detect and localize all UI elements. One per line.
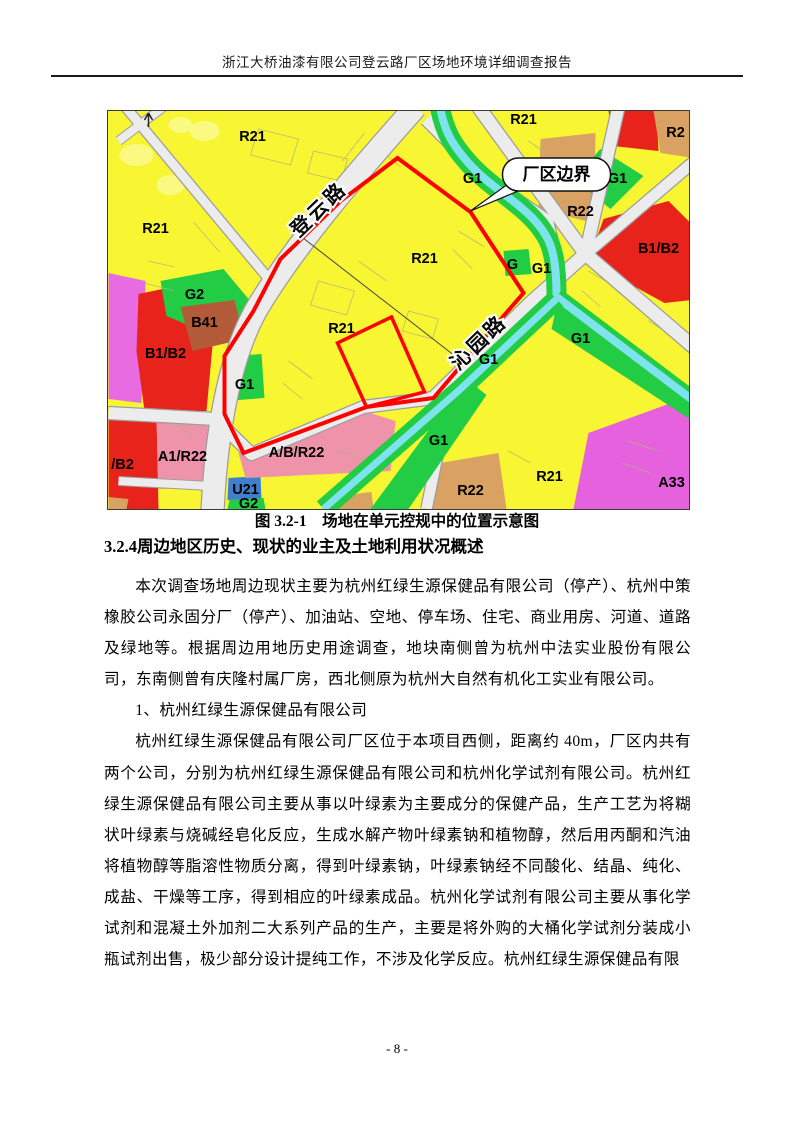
zone-label-G1: G1 <box>532 261 551 277</box>
zone-label-R21: R21 <box>536 469 563 485</box>
zone-tan-bl <box>109 497 129 509</box>
zone-label-R21: R21 <box>510 112 537 128</box>
zone-label-B1/B2: B1/B2 <box>145 346 186 362</box>
zone-label-B1/B2: B1/B2 <box>638 241 679 257</box>
zone-label-R22: R22 <box>457 483 484 499</box>
zone-label-G1: G1 <box>235 377 254 393</box>
zoning-map: R21R21R21R2R22G1B1/B2G1GG1G2B41B1/B2R21R… <box>108 111 689 509</box>
zone-label-R21: R21 <box>328 321 355 337</box>
zone-label-B41: B41 <box>191 315 218 331</box>
list-item-1: 1、杭州红绿生源保健品有限公司 <box>104 695 691 726</box>
zone-label-G1: G1 <box>429 433 448 449</box>
page-number: - 8 - <box>0 1041 794 1057</box>
zone-label-R2: R2 <box>666 125 685 141</box>
zone-label-R21: R21 <box>142 221 169 237</box>
zone-label-G2: G2 <box>185 287 204 303</box>
paragraph-2: 杭州红绿生源保健品有限公司厂区位于本项目西侧，距离约 40m，厂区内共有两个公司… <box>104 726 691 975</box>
zone-label-G: G <box>507 257 518 273</box>
zone-label-A33: A33 <box>658 475 685 491</box>
header-rule <box>51 75 743 77</box>
zone-label-G1: G1 <box>463 171 482 187</box>
zone-label-/B2: /B2 <box>111 457 134 473</box>
section-heading: 3.2.4周边地区历史、现状的业主及土地利用状况概述 <box>104 533 704 557</box>
document-page: 浙江大桥油漆有限公司登云路厂区场地环境详细调查报告 <box>0 0 794 1123</box>
zone-label-R21: R21 <box>411 251 438 267</box>
paragraph-1: 本次调查场地周边现状主要为杭州红绿生源保健品有限公司（停产）、杭州中策橡胶公司永… <box>104 571 691 695</box>
zone-label-G2: G2 <box>239 496 258 509</box>
header-title: 浙江大桥油漆有限公司登云路厂区场地环境详细调查报告 <box>0 51 794 71</box>
zone-label-G1: G1 <box>571 331 590 347</box>
callout-text: 厂区边界 <box>523 165 591 184</box>
zone-label-R22: R22 <box>567 204 594 220</box>
section-body: 本次调查场地周边现状主要为杭州红绿生源保健品有限公司（停产）、杭州中策橡胶公司永… <box>104 571 691 975</box>
figure-caption: 图 3.2-1 场地在单元控规中的位置示意图 <box>0 509 794 531</box>
zone-label-A1/R22: A1/R22 <box>158 449 207 465</box>
figure-map: R21R21R21R2R22G1B1/B2G1GG1G2B41B1/B2R21R… <box>107 110 690 510</box>
zone-label-R21: R21 <box>239 129 266 145</box>
zone-label-A/B/R22: A/B/R22 <box>269 445 325 461</box>
